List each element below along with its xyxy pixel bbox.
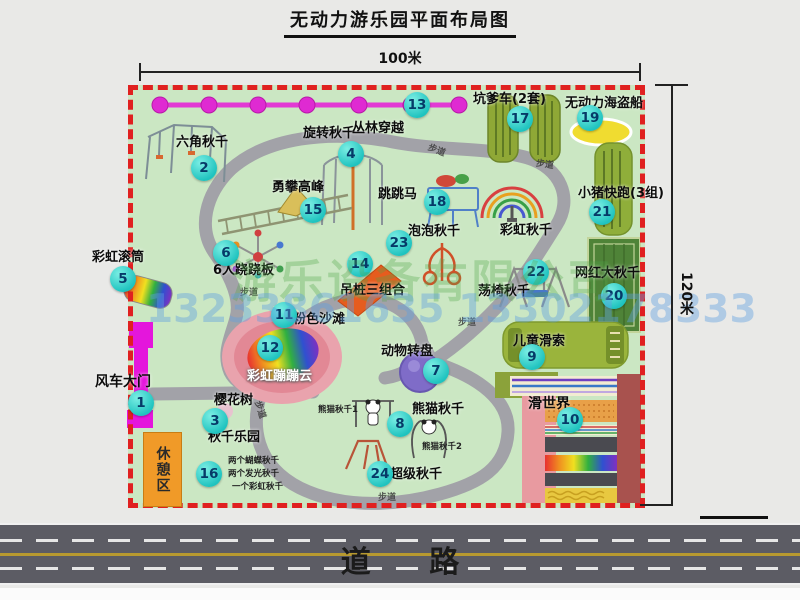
- page-title: 无动力游乐园平面布局图: [0, 6, 800, 38]
- marker-15: 15: [300, 197, 326, 223]
- label-swing-park-sub3: 一个彩虹秋千: [232, 483, 283, 492]
- label-rainbow-cloud: 彩虹蹦蹦云: [247, 369, 312, 385]
- park-plan-poster: 无动力游乐园平面布局图 100米 120米: [0, 0, 800, 600]
- label-jungle-crossing: 丛林穿越: [352, 121, 404, 137]
- marker-12: 12: [257, 335, 283, 361]
- marker-7: 7: [423, 358, 449, 384]
- label-piggy-run: 小猪快跑(3组): [578, 186, 664, 202]
- marker-16: 16: [196, 461, 222, 487]
- marker-21: 21: [589, 199, 615, 225]
- label-panda-swing-2: 熊猫秋千2: [422, 443, 462, 452]
- marker-11: 11: [271, 302, 297, 328]
- park-map: 休憩区 步道 步道 步道 步道 步道 步道 风车大门 1 六角秋千 2 樱花树 …: [128, 85, 645, 508]
- label-peak-climb: 勇攀高峰: [272, 180, 324, 196]
- marker-19: 19: [577, 105, 603, 131]
- label-animal-turntable: 动物转盘: [381, 344, 433, 360]
- marker-23: 23: [386, 230, 412, 256]
- jump-horse-figure: [455, 174, 469, 184]
- bubble-swing-icon: [424, 243, 460, 284]
- trail-label: 步道: [240, 285, 258, 298]
- bottom-strip: [0, 588, 800, 600]
- marker-20: 20: [601, 283, 627, 309]
- marker-1: 1: [128, 390, 154, 416]
- label-cherry-tree: 樱花树: [214, 393, 253, 409]
- label-pit-car: 坑爹车(2套): [473, 92, 546, 108]
- label-gate: 风车大门: [95, 374, 151, 391]
- walking-paths: [152, 136, 564, 503]
- rainbow-swing-icon: [482, 188, 542, 222]
- marker-4: 4: [338, 141, 364, 167]
- marker-22: 22: [523, 259, 549, 285]
- label-super-swing: 超级秋千: [390, 467, 442, 483]
- label-panda-swing-1: 熊猫秋千1: [318, 406, 358, 415]
- marker-13: 13: [404, 92, 430, 118]
- dimension-width-line: [140, 71, 640, 73]
- dimension-tick: [640, 504, 673, 506]
- label-hex-swing: 六角秋千: [176, 135, 228, 151]
- dimension-tick: [639, 63, 641, 81]
- label-hanging-piles: 吊桩三组合: [340, 283, 405, 299]
- marker-24: 24: [367, 461, 393, 487]
- rest-area: 休憩区: [143, 432, 182, 507]
- marker-14: 14: [347, 251, 373, 277]
- marker-17: 17: [507, 106, 533, 132]
- dimension-height-line: [671, 85, 673, 505]
- trail-label: 步道: [458, 315, 476, 328]
- label-jump-horse: 跳跳马: [378, 187, 417, 203]
- dimension-height-label: 120米: [676, 272, 696, 315]
- marker-5: 5: [110, 266, 136, 292]
- label-rotary-swing: 旋转秋千: [303, 126, 355, 142]
- road: 道 路: [0, 523, 800, 585]
- peak-climb-icon: [218, 195, 352, 234]
- label-rainbow-swing: 彩虹秋千: [500, 223, 552, 239]
- label-panda-swing: 熊猫秋千: [412, 402, 464, 418]
- dimension-width-label: 100米: [340, 48, 460, 68]
- dimension-tick: [655, 84, 688, 86]
- marker-3: 3: [202, 408, 228, 434]
- label-bubble-swing: 泡泡秋千: [408, 224, 460, 240]
- marker-8: 8: [387, 411, 413, 437]
- rest-area-label: 休憩区: [153, 446, 173, 494]
- marker-9: 9: [519, 344, 545, 370]
- marker-10: 10: [557, 407, 583, 433]
- label-chair-swing: 荡椅秋千: [478, 284, 530, 300]
- trail-label: 步道: [535, 156, 555, 171]
- marker-18: 18: [424, 189, 450, 215]
- label-rainbow-roller: 彩虹滚筒: [92, 250, 144, 266]
- trail-label: 步道: [378, 490, 396, 503]
- label-swing-park-sub2: 两个发光秋千: [228, 470, 279, 479]
- label-big-swing: 网红大秋千: [575, 266, 640, 282]
- dimension-tick: [700, 516, 768, 519]
- marker-2: 2: [191, 155, 217, 181]
- jump-horse-figure: [436, 175, 456, 187]
- dimension-tick: [139, 63, 141, 81]
- road-label: 道 路: [0, 537, 800, 581]
- label-pink-beach: 粉色沙滩: [293, 312, 345, 328]
- label-swing-park-sub1: 两个蝴蝶秋千: [228, 457, 279, 466]
- slide-world-icon: [495, 372, 641, 503]
- label-pirate-ship: 无动力海盗船: [565, 96, 643, 112]
- marker-6: 6: [213, 240, 239, 266]
